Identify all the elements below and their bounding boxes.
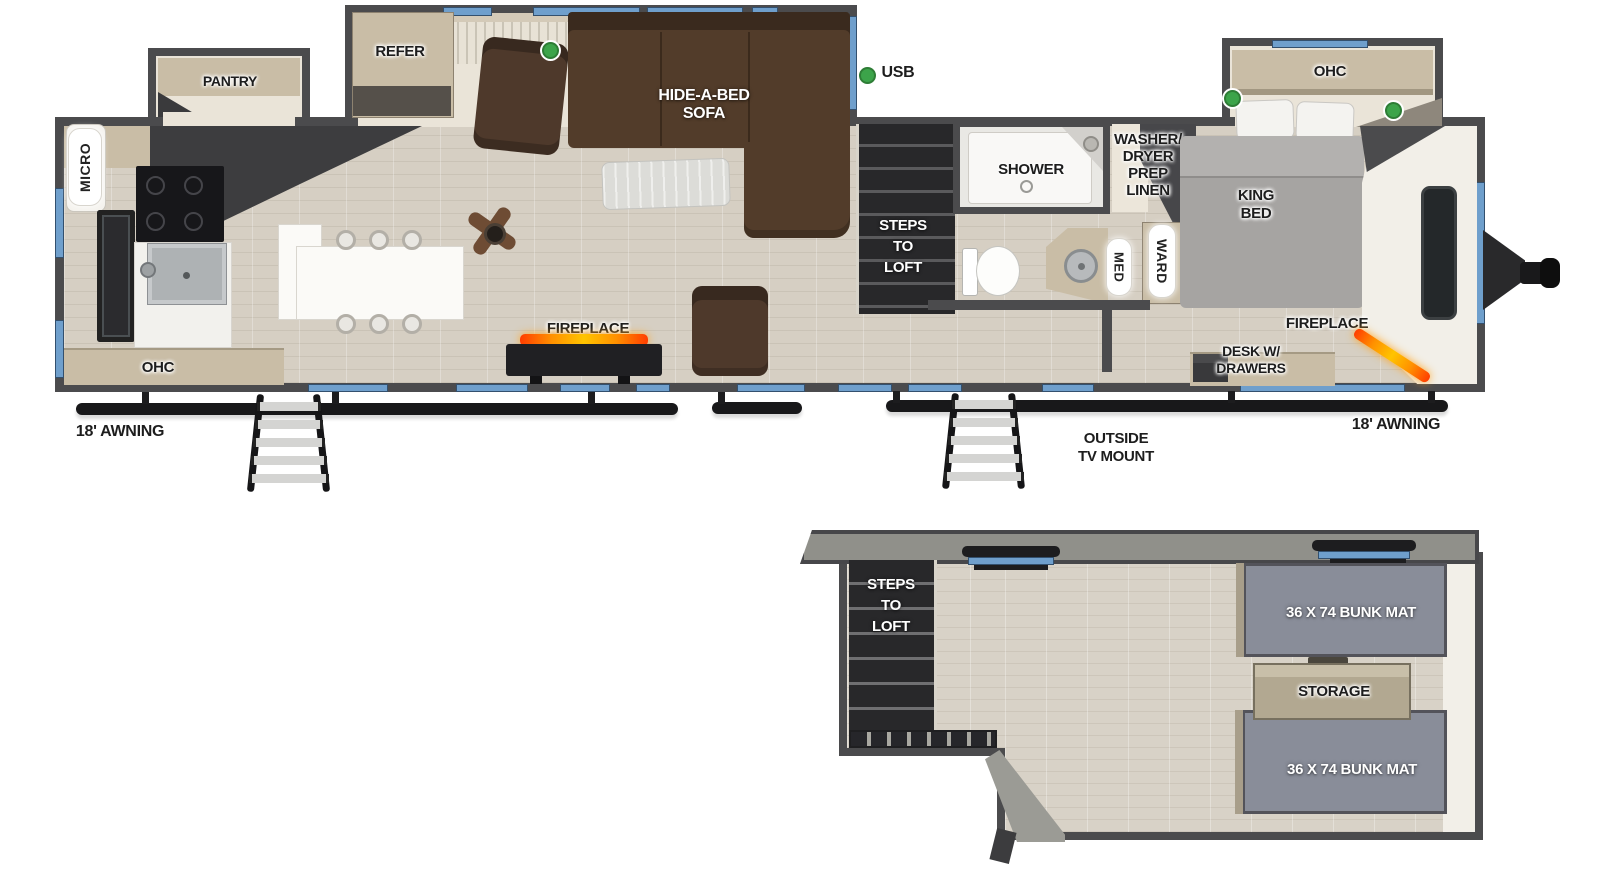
entry-step <box>257 402 321 411</box>
sink-drain <box>183 272 190 279</box>
window-bottom-5 <box>737 384 805 392</box>
stool <box>369 230 389 250</box>
king-bed-label-1: KING <box>1238 188 1274 204</box>
awning-support <box>142 392 149 404</box>
entry-step <box>952 400 1016 409</box>
wd-label-2: DRYER <box>1123 149 1173 165</box>
king-bed-sheet-fold <box>1180 136 1364 178</box>
entry-step <box>255 420 323 429</box>
micro-label: MICRO <box>68 128 102 206</box>
usb-label: USB <box>882 65 915 82</box>
bath-sink-drain <box>1078 263 1085 270</box>
hitch-jack-wheel <box>1540 258 1560 288</box>
tall-cabinet <box>97 210 135 342</box>
awning-right-label: 18' AWNING <box>1352 417 1440 434</box>
awning-support <box>1228 391 1235 403</box>
pantry-label: PANTRY <box>203 74 257 89</box>
window-slide-side <box>849 16 857 110</box>
wd-label-3: PREP <box>1128 166 1168 182</box>
stool <box>402 230 422 250</box>
stove-burner-1 <box>146 176 165 195</box>
loft-catwalk <box>849 730 997 748</box>
pantry-opening <box>163 112 295 127</box>
outside-tv-label-2: TV MOUNT <box>1078 449 1154 465</box>
stool <box>336 314 356 334</box>
bed-pillow <box>1235 99 1294 141</box>
living-fireplace <box>506 344 662 376</box>
bath-bottom-wall <box>928 300 1150 310</box>
kitchen-island <box>296 246 464 320</box>
loft-vent-window <box>968 557 1054 565</box>
desk-label-2: DRAWERS <box>1216 361 1285 376</box>
awning-support <box>1428 391 1435 403</box>
med-label-text: MED <box>1112 252 1127 282</box>
hide-a-bed-label-1: HIDE-A-BED <box>658 88 749 105</box>
stove-burner-3 <box>146 212 165 231</box>
window-bottom-3 <box>560 384 610 392</box>
kitchen-ohc-label: OHC <box>142 360 174 376</box>
stool <box>402 314 422 334</box>
fireplace-foot <box>530 376 542 384</box>
accent-chair <box>692 286 768 376</box>
desk-label-1: DESK W/ <box>1222 344 1280 359</box>
wd-label-4: LINEN <box>1126 183 1170 199</box>
entry-step <box>948 436 1020 445</box>
awning-left-bar <box>76 403 678 415</box>
sofa-chaise <box>744 142 850 238</box>
fireplace-foot <box>618 376 630 384</box>
usb-port-dot <box>542 42 559 59</box>
bunk-top-label: 36 X 74 BUNK MAT <box>1286 605 1416 621</box>
loft-vent-window <box>1318 551 1410 559</box>
outside-tv-label-1: OUTSIDE <box>1084 431 1149 447</box>
window-bedroom-slide <box>1272 40 1368 48</box>
loft-steps-label-1: STEPS <box>867 577 915 593</box>
entry-step <box>253 438 325 447</box>
stove-burner-2 <box>184 176 203 195</box>
entry-step <box>249 474 329 483</box>
bedroom-tv <box>1421 186 1457 320</box>
loft-front-wall <box>1443 560 1475 832</box>
entry-step <box>251 456 327 465</box>
refer-label: REFER <box>375 44 424 60</box>
loft-edge-tab <box>989 828 1016 864</box>
bedroom-ohc-label: OHC <box>1314 64 1346 80</box>
awning-support <box>332 392 339 404</box>
window-bottom-6 <box>838 384 892 392</box>
usb-port-dot <box>1224 90 1241 107</box>
area-rug <box>601 158 731 210</box>
entry-step <box>950 418 1018 427</box>
loft-vent <box>962 546 1060 557</box>
shower-drain <box>1020 180 1033 193</box>
window-left-2 <box>55 320 64 378</box>
awning-support <box>893 391 900 403</box>
awning-support <box>718 392 725 404</box>
window-bottom-1 <box>308 384 388 392</box>
entry-step <box>946 454 1022 463</box>
micro-label-text: MICRO <box>77 142 93 191</box>
main-steps-label-3: LOFT <box>884 260 922 276</box>
shower-label: SHOWER <box>998 162 1064 178</box>
window-bottom-4 <box>636 384 670 392</box>
main-steps-label-2: TO <box>893 239 913 255</box>
hitch-tongue <box>1483 230 1525 310</box>
usb-legend-dot <box>859 67 876 84</box>
entry-step <box>944 472 1024 481</box>
window-bottom-7 <box>908 384 962 392</box>
loft-vent-frame <box>974 565 1048 570</box>
hide-a-bed-label-2: SOFA <box>683 106 725 123</box>
bunk-top-frame-edge <box>1236 563 1244 657</box>
wardrobe-label: WARD <box>1148 224 1176 298</box>
ceiling-fan-hub <box>484 223 506 245</box>
window-bottom-8 <box>1042 384 1094 392</box>
wd-label-1: WASHER/ <box>1114 132 1182 148</box>
refrigerator-front <box>353 86 451 116</box>
storage-label: STORAGE <box>1298 684 1370 700</box>
loft-vent <box>1312 540 1416 551</box>
bunk-bottom-frame-edge <box>1235 710 1243 814</box>
shower-head <box>1083 136 1099 152</box>
window-bottom-2 <box>456 384 528 392</box>
window-left-1 <box>55 188 64 258</box>
bedroom-entry-wall <box>1102 300 1112 372</box>
loft-steps-label-2: TO <box>881 598 901 614</box>
rv-floorplan-diagram: MICRO OHC REFER HIDE-A-BED SOFA FIREPLAC… <box>0 0 1600 882</box>
loft-steps-label-3: LOFT <box>872 619 910 635</box>
ward-label-text: WARD <box>1154 239 1170 284</box>
king-bed-label-2: BED <box>1241 206 1272 222</box>
toilet-bowl <box>976 246 1020 296</box>
usb-port-dot <box>1385 102 1402 119</box>
med-cabinet-label: MED <box>1106 238 1132 296</box>
awning-left-label: 18' AWNING <box>76 424 164 441</box>
sink-faucet <box>140 262 156 278</box>
main-steps-label-1: STEPS <box>879 218 927 234</box>
stool <box>336 230 356 250</box>
bunk-bottom-label: 36 X 74 BUNK MAT <box>1287 762 1417 778</box>
stool <box>369 314 389 334</box>
awning-support <box>588 392 595 404</box>
stove-burner-4 <box>184 212 203 231</box>
awning-middle-bar <box>712 402 802 414</box>
